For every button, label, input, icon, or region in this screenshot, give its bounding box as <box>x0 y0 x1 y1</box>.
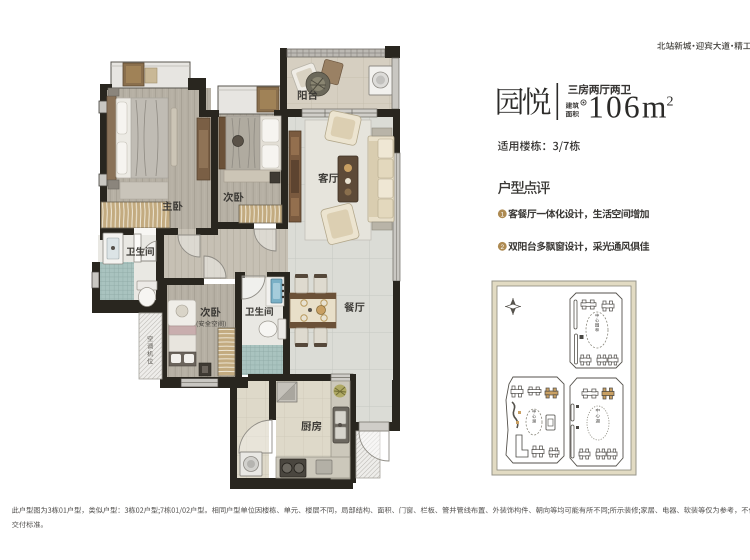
svg-text:106m: 106m <box>588 90 669 125</box>
svg-text:2: 2 <box>667 95 674 110</box>
svg-text:2: 2 <box>501 244 505 251</box>
svg-text:1: 1 <box>501 211 505 218</box>
